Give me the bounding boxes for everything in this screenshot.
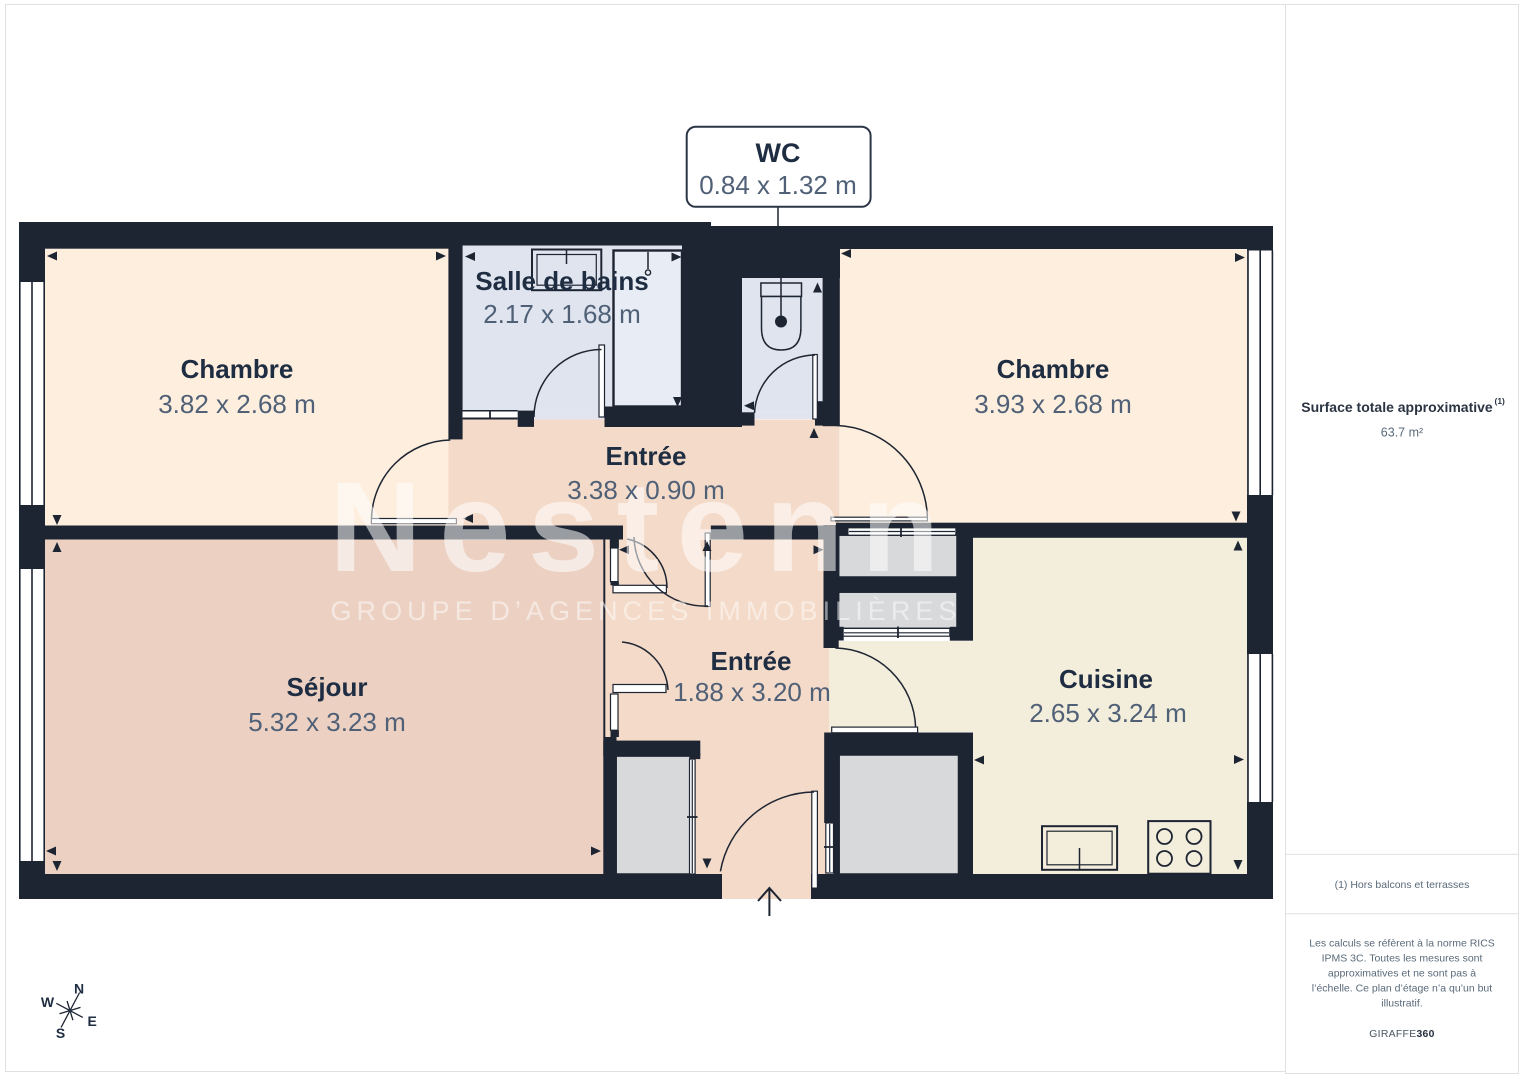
svg-text:GIRAFFE360: GIRAFFE360: [1369, 1029, 1434, 1040]
svg-text:3.93 x 2.68 m: 3.93 x 2.68 m: [974, 389, 1132, 419]
svg-text:(1) Hors balcons et terrasses: (1) Hors balcons et terrasses: [1335, 879, 1470, 891]
svg-text:Les calculs se réfèrent à la n: Les calculs se réfèrent à la norme RICS: [1309, 937, 1495, 949]
svg-text:3.82 x 2.68 m: 3.82 x 2.68 m: [158, 389, 316, 419]
svg-text:63.7 m²: 63.7 m²: [1381, 426, 1423, 440]
svg-text:(1): (1): [1495, 396, 1506, 406]
svg-text:Chambre: Chambre: [997, 354, 1110, 384]
svg-text:1.88 x 3.20 m: 1.88 x 3.20 m: [673, 677, 831, 707]
svg-text:W: W: [41, 994, 55, 1010]
svg-text:E: E: [88, 1013, 97, 1029]
svg-text:Entrée: Entrée: [606, 441, 687, 471]
svg-text:3.38 x 0.90 m: 3.38 x 0.90 m: [567, 475, 725, 505]
svg-text:S: S: [56, 1025, 65, 1041]
svg-text:Salle de bains: Salle de bains: [475, 266, 648, 296]
svg-text:Surface totale approximative: Surface totale approximative: [1301, 399, 1493, 415]
svg-text:approximatives et ne sont pas: approximatives et ne sont pas à: [1328, 967, 1476, 979]
svg-text:WC: WC: [756, 138, 801, 168]
svg-text:N: N: [74, 981, 84, 997]
svg-text:Cuisine: Cuisine: [1059, 664, 1153, 694]
svg-text:IPMS 3C. Toutes les mesures so: IPMS 3C. Toutes les mesures sont: [1322, 952, 1483, 964]
svg-text:GROUPE D’AGENCES IMMOBILIÈRES: GROUPE D’AGENCES IMMOBILIÈRES: [330, 596, 961, 626]
svg-text:2.17 x 1.68 m: 2.17 x 1.68 m: [483, 299, 641, 329]
svg-text:Entrée: Entrée: [711, 646, 792, 676]
svg-text:0.84 x 1.32 m: 0.84 x 1.32 m: [699, 170, 857, 200]
svg-text:Séjour: Séjour: [287, 672, 368, 702]
svg-text:2.65 x 3.24 m: 2.65 x 3.24 m: [1029, 698, 1187, 728]
svg-text:l’échelle. Ce plan d’étage n’a: l’échelle. Ce plan d’étage n’a qu’un but: [1312, 982, 1492, 994]
svg-text:illustratif.: illustratif.: [1381, 997, 1422, 1009]
svg-text:5.32 x 3.23 m: 5.32 x 3.23 m: [248, 707, 406, 737]
svg-text:Chambre: Chambre: [181, 354, 294, 384]
